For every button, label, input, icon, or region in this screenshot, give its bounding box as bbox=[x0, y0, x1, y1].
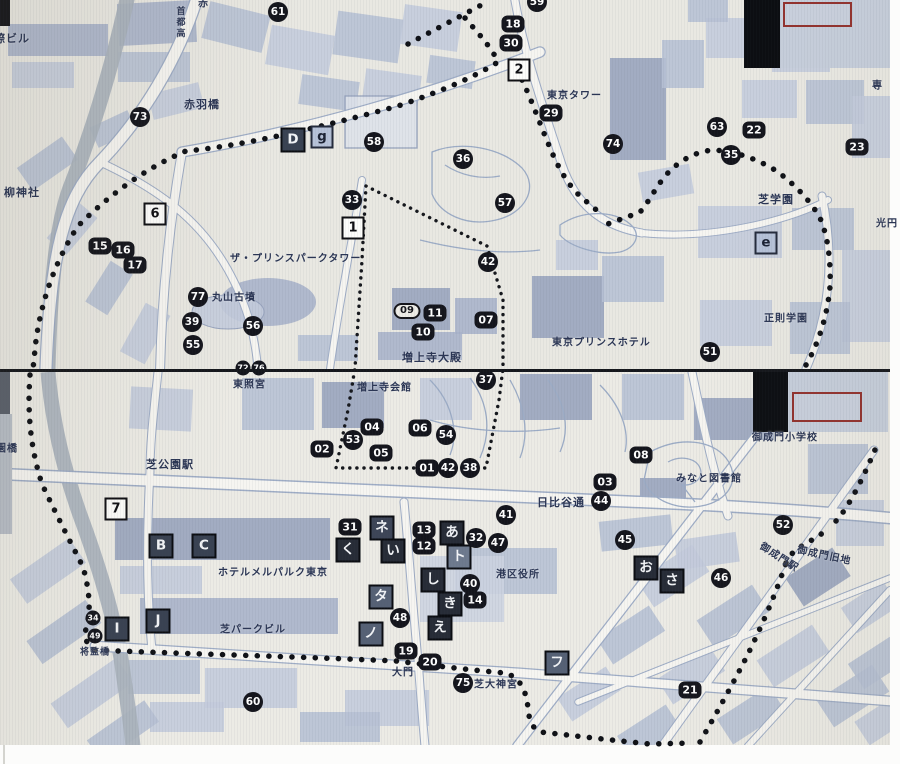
screen-scanline-texture bbox=[0, 0, 890, 745]
photo-margin-line bbox=[3, 745, 5, 764]
map-photo-collage: 際ビル首都高赤赤羽橋柳神社東京タワーザ・プリンスパークタワー丸山古墳増上寺大殿東… bbox=[0, 0, 900, 764]
